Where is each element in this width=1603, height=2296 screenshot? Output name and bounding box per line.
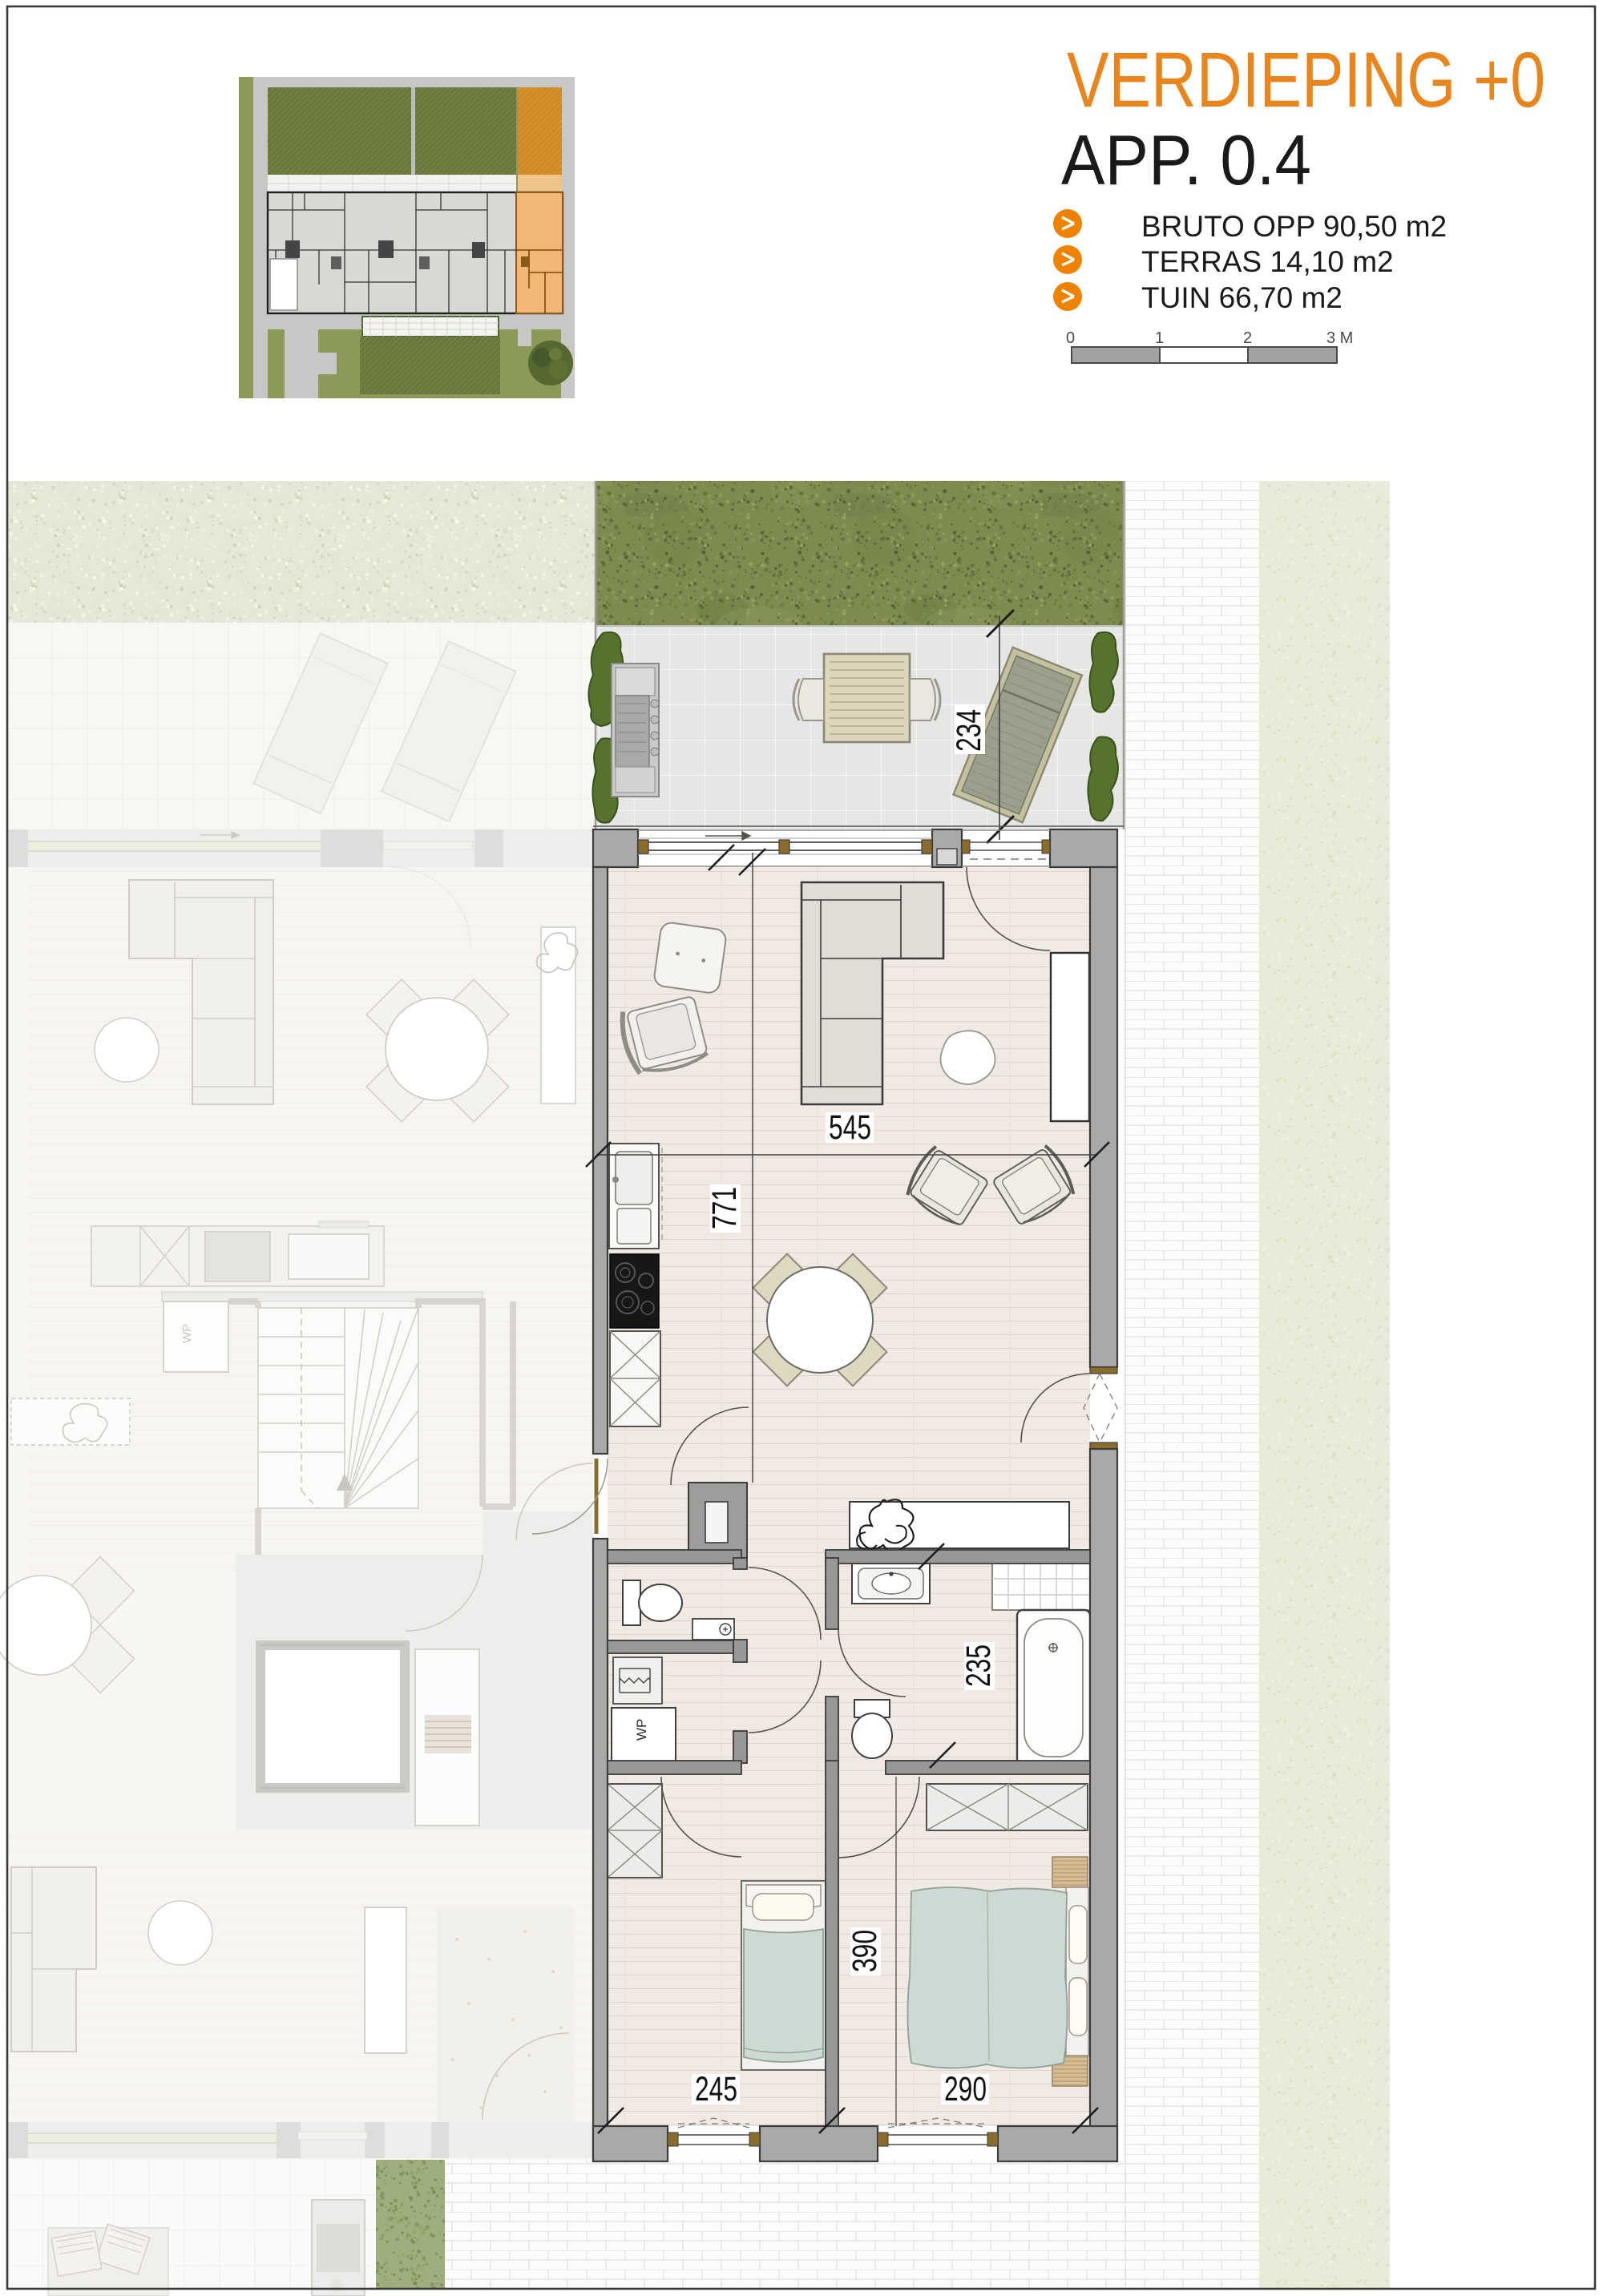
svg-text:545: 545 — [829, 1108, 871, 1147]
svg-text:VERDIEPING +0: VERDIEPING +0 — [1067, 36, 1545, 123]
svg-text:TERRAS 14,10 m2: TERRAS 14,10 m2 — [1141, 245, 1394, 278]
svg-text:TUIN 66,70 m2: TUIN 66,70 m2 — [1141, 281, 1343, 314]
svg-text:290: 290 — [944, 2070, 987, 2108]
svg-text:BRUTO OPP 90,50 m2: BRUTO OPP 90,50 m2 — [1141, 210, 1447, 243]
svg-text:1: 1 — [1155, 329, 1164, 347]
svg-text:0: 0 — [1066, 329, 1075, 347]
svg-text:APP. 0.4: APP. 0.4 — [1061, 120, 1311, 200]
svg-text:235: 235 — [959, 1644, 998, 1687]
svg-text:2: 2 — [1243, 329, 1252, 347]
svg-text:771: 771 — [705, 1187, 744, 1229]
svg-text:3 M: 3 M — [1326, 329, 1353, 347]
svg-text:WP: WP — [180, 1324, 194, 1343]
svg-text:245: 245 — [695, 2070, 737, 2108]
svg-text:234: 234 — [950, 709, 988, 752]
svg-text:390: 390 — [846, 1930, 884, 1972]
svg-text:WP: WP — [634, 1719, 649, 1741]
